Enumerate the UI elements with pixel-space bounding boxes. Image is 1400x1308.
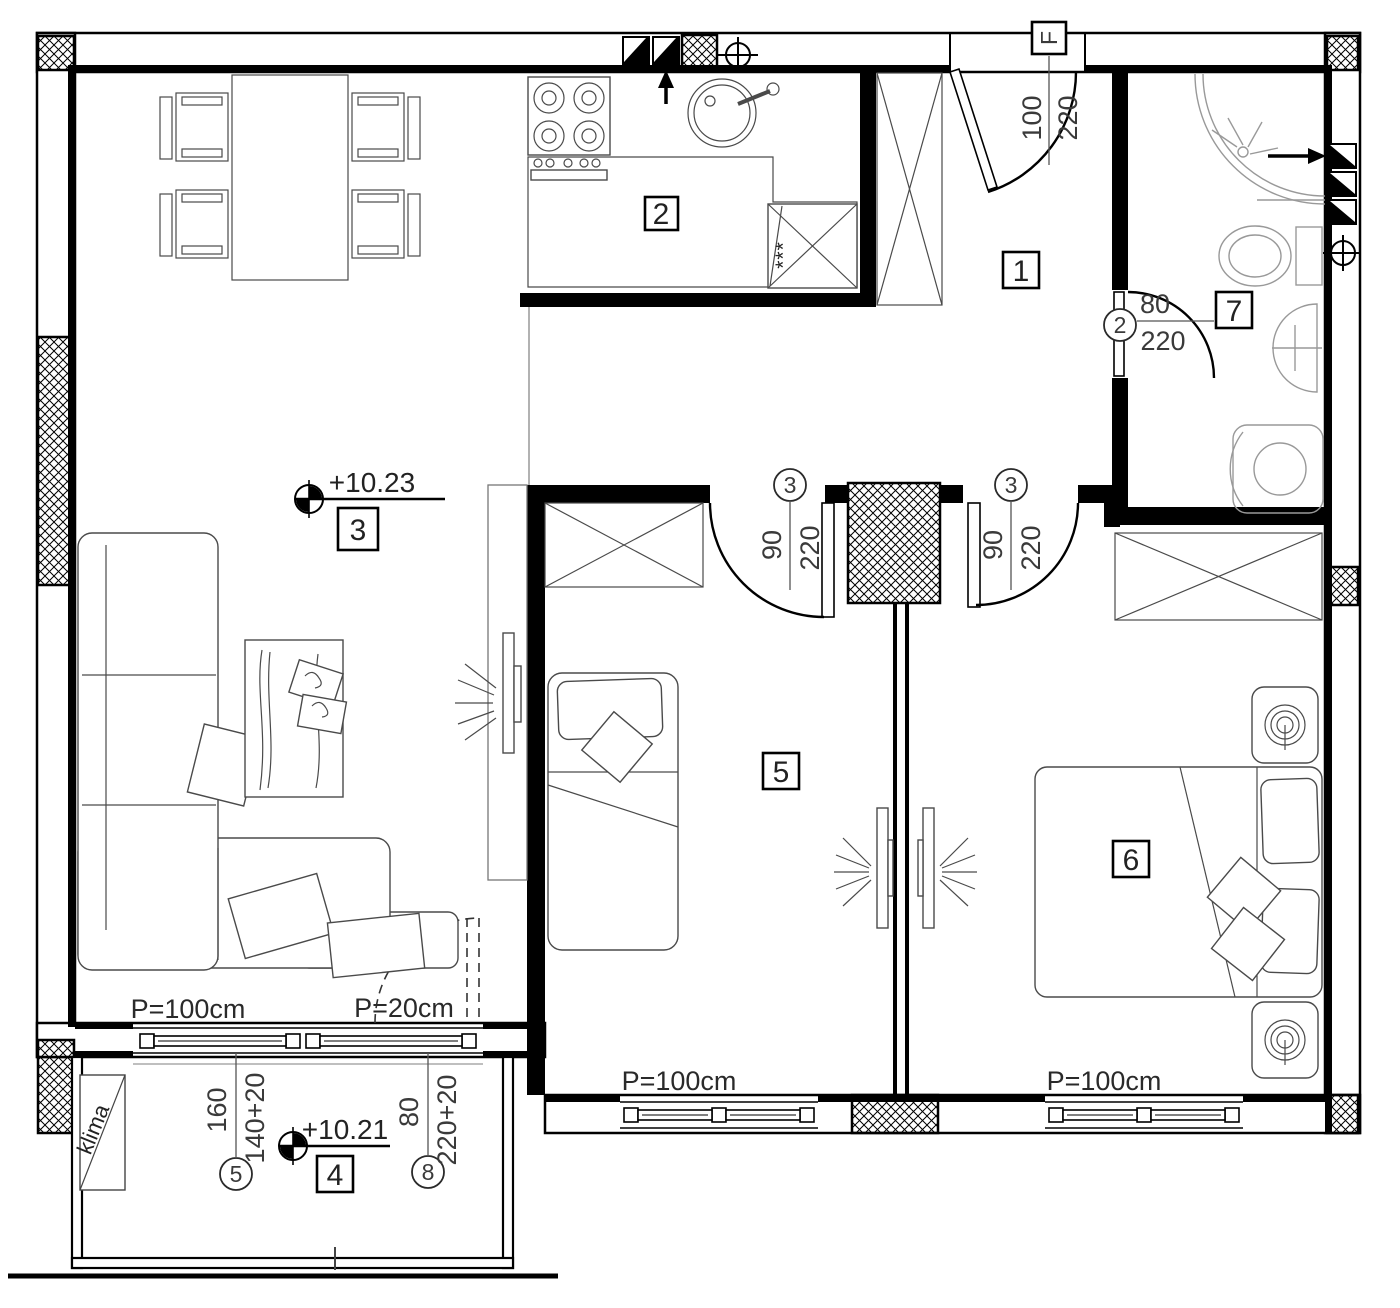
balcony: klima [8,1057,558,1276]
balcony-door-tag: 8 80 220+20 [394,1053,462,1188]
room-label-4: 4 [327,1159,344,1192]
balcony-door-height: 220+20 [432,1075,462,1166]
room-label-3: 3 [350,514,367,547]
room5-door-width: 90 [757,530,787,560]
dishwasher: *** [768,204,857,288]
room-label-5: 5 [773,756,790,789]
bathroom-door-height: 220 [1140,326,1185,356]
stove [528,77,610,180]
tv-wall [455,485,527,880]
throw-pillow [327,913,424,977]
freezer-stars: *** [772,241,795,269]
room5-door-height: 220 [795,525,825,570]
room-label-1: 1 [1013,255,1030,288]
toilet [1219,226,1322,286]
klima-unit: klima [72,1075,125,1190]
room6-door-height: 220 [1016,525,1046,570]
room5-window [620,1098,818,1130]
room-label-7: 7 [1226,295,1243,328]
balcony-window-width: 160 [202,1087,232,1132]
dining-table [232,75,348,280]
balcony-window-height: 140+20 [240,1073,270,1164]
washing-machine [1230,425,1323,513]
bathroom-door-tag-num: 2 [1114,312,1127,338]
bathroom-fixtures [1195,74,1325,513]
room5-furniture [545,503,703,950]
dining-set [160,75,420,280]
balcony-window-tag: 5 160 140+20 [202,1053,270,1190]
chair [160,93,228,161]
nightstand [1252,687,1318,763]
balcony-door-width: 80 [394,1097,424,1127]
room6-door-tag: 3 90 220 [978,469,1046,590]
nightstand [1252,1002,1318,1078]
sink [688,79,779,147]
parapet-balcony-window: P=100cm [131,994,246,1024]
level-living: +10.23 [329,467,415,498]
wardrobe-room6 [1115,533,1322,620]
chair [352,190,420,258]
chair [352,93,420,161]
bathroom-door-width: 80 [1140,289,1170,319]
room-label-6: 6 [1123,844,1140,877]
parapet-balcony-door: P=20cm [354,993,454,1023]
wardrobe-room5 [545,503,703,587]
kitchen: *** [528,77,857,288]
vent-arrow-up [658,70,674,104]
room6-door-width: 90 [978,530,1008,560]
pillow [1261,778,1320,864]
shower [1195,74,1325,204]
hall-closet [877,73,942,305]
tv [503,633,514,753]
chair [160,190,228,258]
floor-plan-drawing: klima *** [0,0,1400,1308]
room5-door-tag: 3 90 220 [757,469,825,590]
balcony-window-tag-num: 5 [230,1161,243,1187]
parapet-room6-window: P=100cm [1047,1066,1162,1096]
entrance-door-height: 220 [1053,95,1083,140]
room6-furniture [1035,533,1322,1078]
room5-door-tag-num: 3 [784,472,797,498]
level-balcony: +10.21 [302,1114,388,1145]
room-label-2: 2 [653,198,670,231]
balcony-glazing [133,1025,483,1055]
entrance-door-width: 100 [1017,95,1047,140]
vent-arrow-right [1268,148,1326,164]
room6-door-tag-num: 3 [1005,472,1018,498]
room6-window [1045,1098,1243,1130]
floor-plan-page: klima *** [0,0,1400,1308]
parapet-room5-window: P=100cm [622,1066,737,1096]
entrance-tag-letter: F [1036,31,1062,45]
coffee-table [245,640,346,797]
bathroom-sink [1272,304,1322,392]
